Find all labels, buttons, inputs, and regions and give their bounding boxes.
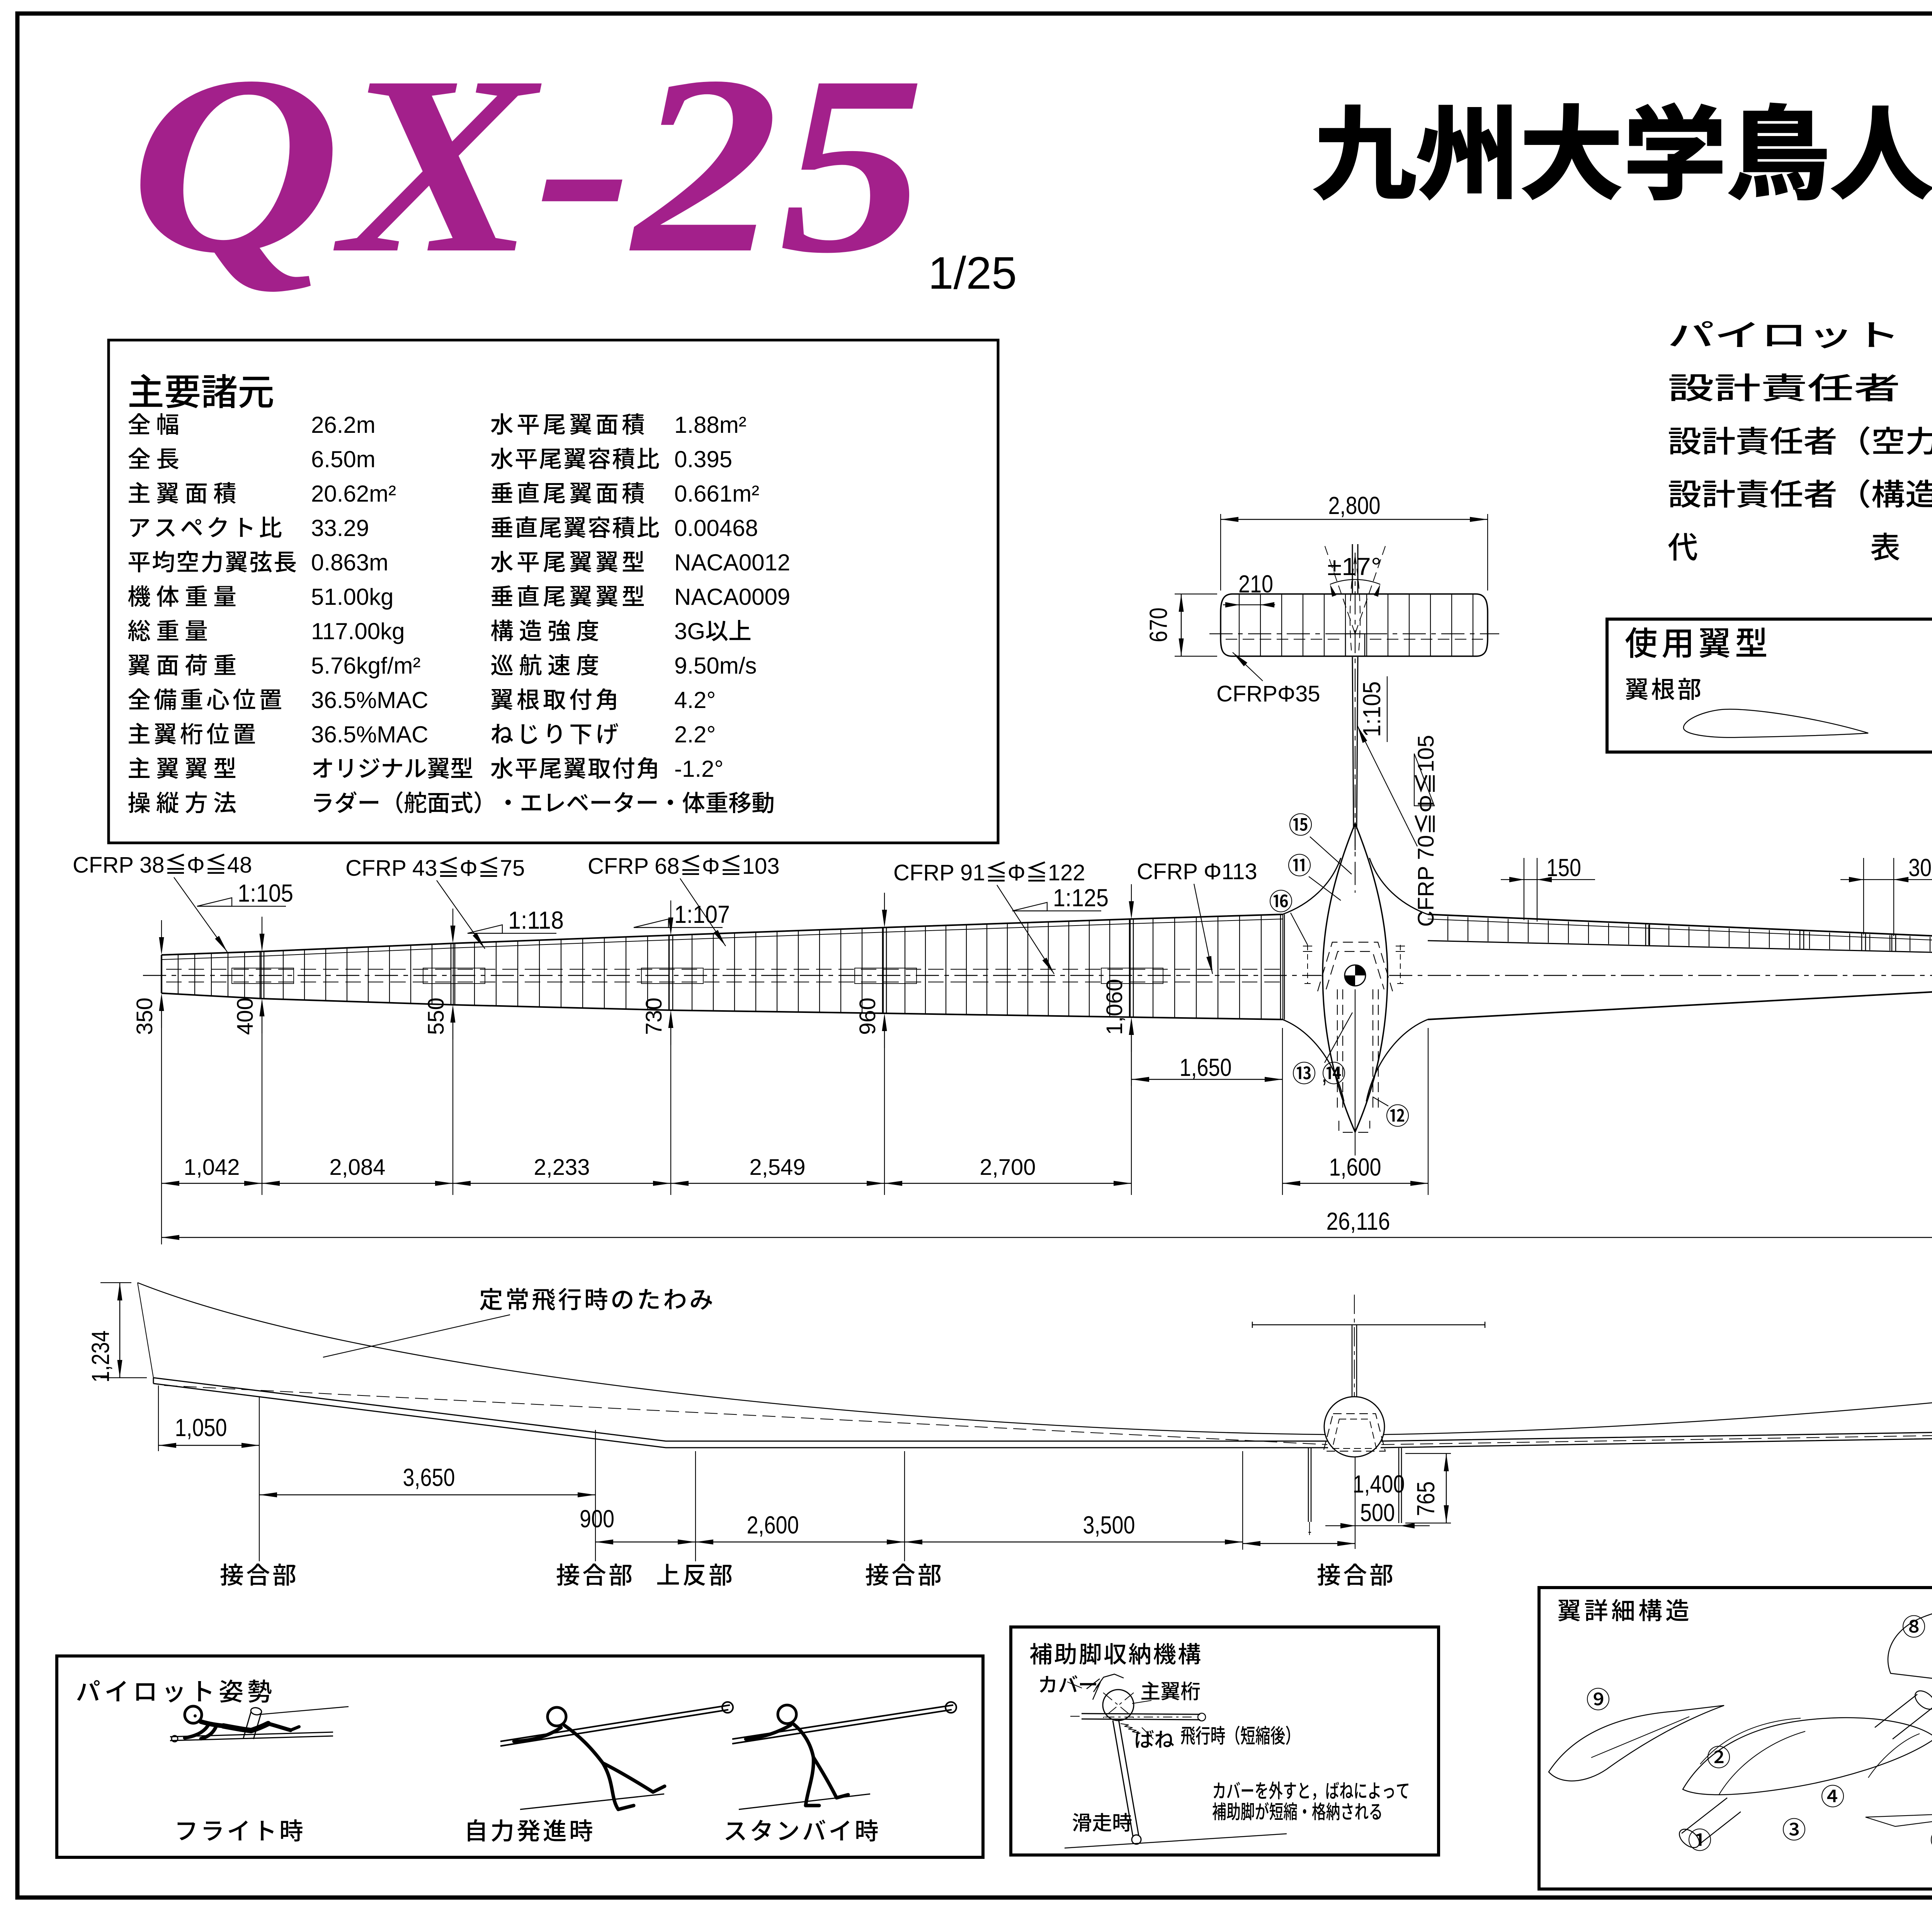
svg-text:翼詳細構造: 翼詳細構造 [1557,1591,1692,1626]
svg-text:550: 550 [423,997,449,1035]
svg-text:主翼桁: 主翼桁 [1140,1675,1201,1704]
svg-text:構造強度: 構造強度 [490,613,605,646]
svg-text:2,549: 2,549 [749,1155,805,1180]
svg-text:CFRP 68≦Φ≦103: CFRP 68≦Φ≦103 [588,854,780,879]
svg-text:36.5%MAC: 36.5%MAC [311,687,428,713]
svg-text:2.2°: 2.2° [674,722,716,747]
svg-text:1,050: 1,050 [175,1414,227,1441]
svg-text:⑬: ⑬ [1292,1054,1316,1089]
svg-text:1:105: 1:105 [1358,681,1386,737]
svg-text:1,042: 1,042 [184,1155,240,1180]
svg-text:⑨: ⑨ [1586,1680,1610,1715]
svg-text:補助脚収納機構: 補助脚収納機構 [1029,1636,1202,1670]
svg-text:⑩: ⑩ [1930,1821,1932,1856]
svg-text:1:125: 1:125 [1053,884,1109,912]
svg-text:1:105: 1:105 [238,879,293,907]
svg-text:上反部: 上反部 [656,1556,735,1591]
svg-text:3,650: 3,650 [403,1464,455,1491]
svg-text:巡航速度: 巡航速度 [490,647,605,681]
svg-text:水平尾翼翼型: 水平尾翼翼型 [490,544,648,577]
svg-text:20.62m²: 20.62m² [311,481,396,507]
svg-text:使用翼型: 使用翼型 [1625,617,1772,665]
svg-text:0.00468: 0.00468 [674,515,758,541]
svg-text:設計責任者（構造）: 設計責任者（構造） [1668,471,1932,514]
svg-text:765: 765 [1412,1481,1440,1516]
svg-text:飛行時（短縮後）: 飛行時（短縮後） [1180,1720,1300,1749]
svg-text:補助脚が短縮・格納される: 補助脚が短縮・格納される [1212,1797,1383,1824]
svg-text:操縦方法: 操縦方法 [128,785,242,818]
svg-text:接合部: 接合部 [865,1556,944,1591]
svg-text:全長: 全長 [128,441,185,474]
svg-text:1,060: 1,060 [1102,979,1127,1035]
svg-text:⑯: ⑯ [1269,882,1293,917]
svg-text:3G以上: 3G以上 [674,618,752,644]
svg-text:垂直尾翼容積比: 垂直尾翼容積比 [490,509,661,543]
svg-text:150: 150 [1546,854,1581,882]
svg-text:総重量: 総重量 [128,613,213,646]
svg-text:カバー: カバー [1038,1669,1098,1698]
svg-text:接合部: 接合部 [556,1556,635,1591]
svg-text:0.395: 0.395 [674,446,732,472]
svg-text:設計責任者（空力）: 設計責任者（空力） [1668,418,1932,461]
svg-text:平均空力翼弦長: 平均空力翼弦長 [128,544,298,577]
svg-text:翼面荷重: 翼面荷重 [128,647,242,681]
svg-text:4.2°: 4.2° [674,687,716,713]
svg-text:210: 210 [1238,570,1273,598]
svg-text:-1.2°: -1.2° [674,756,723,782]
svg-text:1.88m²: 1.88m² [674,412,747,438]
svg-text:0.863m: 0.863m [311,550,388,575]
svg-text:①: ① [1688,1821,1712,1856]
svg-text:水平尾翼面積: 水平尾翼面積 [490,406,648,440]
svg-text:±17°: ±17° [1327,553,1381,580]
svg-text:2,800: 2,800 [1328,492,1381,519]
svg-text:主翼翼型: 主翼翼型 [128,750,242,784]
svg-text:2,084: 2,084 [329,1155,385,1180]
svg-text:自力発進時: 自力発進時 [464,1812,595,1847]
svg-text:51.00kg: 51.00kg [311,584,394,610]
svg-text:33.29: 33.29 [311,515,369,541]
svg-text:パイロット姿勢: パイロット姿勢 [76,1672,276,1708]
svg-text:2,600: 2,600 [747,1511,799,1539]
svg-text:翼根部: 翼根部 [1625,670,1704,705]
svg-text:垂直尾翼翼型: 垂直尾翼翼型 [490,578,648,612]
svg-text:アスペクト比: アスペクト比 [128,509,285,543]
svg-text:垂直尾翼面積: 垂直尾翼面積 [490,475,648,509]
svg-text:1/25: 1/25 [928,248,1017,299]
svg-text:400: 400 [233,997,258,1035]
svg-text:1,600: 1,600 [1329,1153,1381,1181]
svg-text:⑪: ⑪ [1287,846,1311,881]
svg-text:9.50m/s: 9.50m/s [674,653,757,679]
svg-text:CFRPΦ35: CFRPΦ35 [1216,681,1320,706]
svg-text:水平尾翼取付角: 水平尾翼取付角 [490,750,661,784]
svg-text:主翼面積: 主翼面積 [128,475,242,509]
svg-text:接合部: 接合部 [220,1556,299,1591]
svg-text:300: 300 [1908,854,1932,882]
svg-text:NACA0012: NACA0012 [674,550,790,575]
svg-text:730: 730 [641,997,667,1035]
svg-text:定常飛行時のたわみ: 定常飛行時のたわみ [479,1280,716,1315]
svg-text:翼根取付角: 翼根取付角 [490,681,622,715]
svg-text:接合部: 接合部 [1317,1556,1396,1591]
svg-text:1:107: 1:107 [674,900,730,928]
svg-text:5.76kgf/m²: 5.76kgf/m² [311,653,420,679]
svg-text:CFRP 70≦Φ≦105: CFRP 70≦Φ≦105 [1413,735,1439,927]
svg-text:⑮: ⑮ [1289,806,1313,841]
svg-text:パイロット: パイロット [1668,311,1900,355]
svg-text:960: 960 [855,997,880,1035]
svg-text:フライト時: フライト時 [174,1812,306,1847]
svg-text:117.00kg: 117.00kg [311,618,405,644]
svg-text:代: 代 [1668,524,1698,567]
svg-text:670: 670 [1145,608,1172,642]
svg-text:スタンバイ時: スタンバイ時 [723,1812,881,1847]
svg-text:⑭: ⑭ [1322,1054,1346,1089]
svg-text:26,116: 26,116 [1327,1207,1390,1235]
svg-text:NACA0009: NACA0009 [674,584,790,610]
svg-text:水平尾翼容積比: 水平尾翼容積比 [490,441,661,474]
svg-text:ラダー（舵面式）・エレベーター・体重移動: ラダー（舵面式）・エレベーター・体重移動 [311,785,775,818]
svg-text:ねじり下げ: ねじり下げ [490,716,622,749]
svg-text:26.2m: 26.2m [311,412,376,438]
svg-text:九州大学鳥人間チーム: 九州大学鳥人間チーム [1313,73,1932,220]
svg-text:500: 500 [1360,1499,1395,1527]
svg-text:設計責任者: 設計責任者 [1668,364,1900,408]
svg-text:2,700: 2,700 [980,1155,1036,1180]
svg-text:6.50m: 6.50m [311,446,376,472]
svg-text:CFRP 38≦Φ≦48: CFRP 38≦Φ≦48 [73,853,252,878]
svg-text:1:118: 1:118 [508,906,564,934]
svg-text:1,400: 1,400 [1353,1470,1405,1498]
svg-text:③: ③ [1782,1811,1806,1845]
svg-text:CFRP 43≦Φ≦75: CFRP 43≦Φ≦75 [345,856,525,881]
svg-text:CFRP 91≦Φ≦122: CFRP 91≦Φ≦122 [893,860,1085,885]
svg-text:オリジナル翼型: オリジナル翼型 [311,750,473,784]
svg-text:CFRP Φ113: CFRP Φ113 [1137,859,1257,884]
svg-text:ばね: ばね [1134,1724,1174,1753]
svg-text:0.661m²: 0.661m² [674,481,759,507]
svg-text:②: ② [1707,1738,1731,1773]
svg-text:表: 表 [1870,524,1900,567]
svg-text:QX-25: QX-25 [130,23,925,306]
svg-text:滑走時: 滑走時 [1072,1807,1132,1836]
svg-text:1,234: 1,234 [87,1331,114,1383]
svg-text:全幅: 全幅 [128,406,185,440]
svg-text:主翼桁位置: 主翼桁位置 [128,716,259,749]
svg-text:3,500: 3,500 [1083,1511,1135,1539]
svg-text:④: ④ [1821,1777,1845,1812]
svg-text:2,233: 2,233 [534,1155,590,1180]
svg-text:1,650: 1,650 [1180,1053,1232,1081]
svg-text:全備重心位置: 全備重心位置 [128,681,285,715]
svg-text:350: 350 [132,997,157,1035]
svg-text:⑧: ⑧ [1902,1608,1926,1642]
svg-text:900: 900 [580,1505,614,1533]
svg-text:機体重量: 機体重量 [128,578,242,612]
svg-text:36.5%MAC: 36.5%MAC [311,722,428,747]
svg-text:⑫: ⑫ [1386,1097,1410,1132]
